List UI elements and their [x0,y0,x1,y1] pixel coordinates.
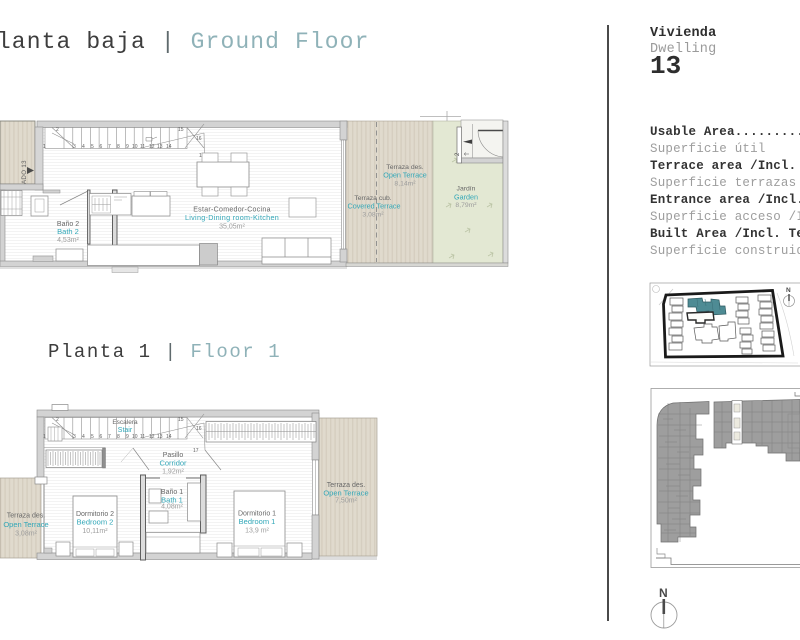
svg-text:3: 3 [73,434,76,440]
svg-text:9: 9 [126,434,129,440]
svg-text:6: 6 [100,144,103,150]
svg-text:ADO 13: ADO 13 [21,160,28,184]
svg-text:7: 7 [108,144,111,150]
svg-text:4: 4 [82,144,85,150]
svg-text:Open Terrace: Open Terrace [383,171,426,180]
svg-text:8,14m²: 8,14m² [394,181,416,188]
svg-text:Open Terrace: Open Terrace [323,489,368,498]
svg-text:N: N [786,287,791,294]
svg-text:Jardín: Jardín [457,186,476,193]
svg-text:13,9 m²: 13,9 m² [245,528,269,535]
svg-text:1,92m²: 1,92m² [162,469,184,476]
svg-text:11: 11 [140,434,145,440]
svg-text:14: 14 [166,434,172,440]
svg-text:13: 13 [157,434,163,440]
svg-text:Bath 2: Bath 2 [57,227,79,236]
svg-text:3: 3 [73,144,76,150]
svg-text:Open Terrace: Open Terrace [3,520,48,529]
svg-text:17: 17 [193,448,199,454]
svg-text:7: 7 [108,434,111,440]
svg-text:Escalera: Escalera [112,419,138,426]
svg-text:1: 1 [43,434,46,440]
svg-text:4,08m²: 4,08m² [161,504,183,511]
svg-text:7,50m²: 7,50m² [335,498,357,505]
svg-text:2: 2 [56,127,59,133]
svg-text:Stair: Stair [118,427,133,434]
svg-text:9: 9 [126,144,129,150]
svg-text:8,79m²: 8,79m² [455,202,477,209]
svg-text:8: 8 [117,434,120,440]
svg-text:Corridor: Corridor [159,459,187,468]
svg-text:3,08m²: 3,08m² [15,531,37,538]
svg-text:3,08m²: 3,08m² [362,212,384,219]
svg-text:6: 6 [100,434,103,440]
svg-text:15: 15 [178,127,184,133]
svg-text:5: 5 [91,144,94,150]
svg-text:12: 12 [149,434,155,440]
svg-text:13: 13 [157,144,163,150]
svg-text:Terraza des.: Terraza des. [7,513,46,520]
svg-text:2: 2 [56,417,59,423]
svg-text:Bedroom 1: Bedroom 1 [239,517,276,526]
svg-text:4,53m²: 4,53m² [57,237,79,244]
svg-text:Living-Dining room-Kitchen: Living-Dining room-Kitchen [185,213,279,222]
svg-text:Covered Terrace: Covered Terrace [348,202,401,211]
svg-text:15: 15 [178,417,184,423]
svg-text:16: 16 [196,136,202,142]
svg-text:35,05m²: 35,05m² [219,224,245,231]
svg-text:10: 10 [132,144,138,150]
svg-text:10,11m²: 10,11m² [82,528,108,535]
svg-text:10: 10 [132,434,138,440]
svg-text:12: 12 [149,144,155,150]
svg-text:5: 5 [91,434,94,440]
svg-text:4: 4 [82,434,85,440]
svg-text:11: 11 [140,144,145,150]
svg-text:16: 16 [196,426,202,432]
svg-text:Bedroom 2: Bedroom 2 [77,518,114,527]
svg-text:8: 8 [117,144,120,150]
svg-text:1: 1 [43,144,46,150]
svg-text:14: 14 [166,144,172,150]
svg-text:N: N [659,586,668,600]
svg-text:Garden: Garden [454,193,478,202]
